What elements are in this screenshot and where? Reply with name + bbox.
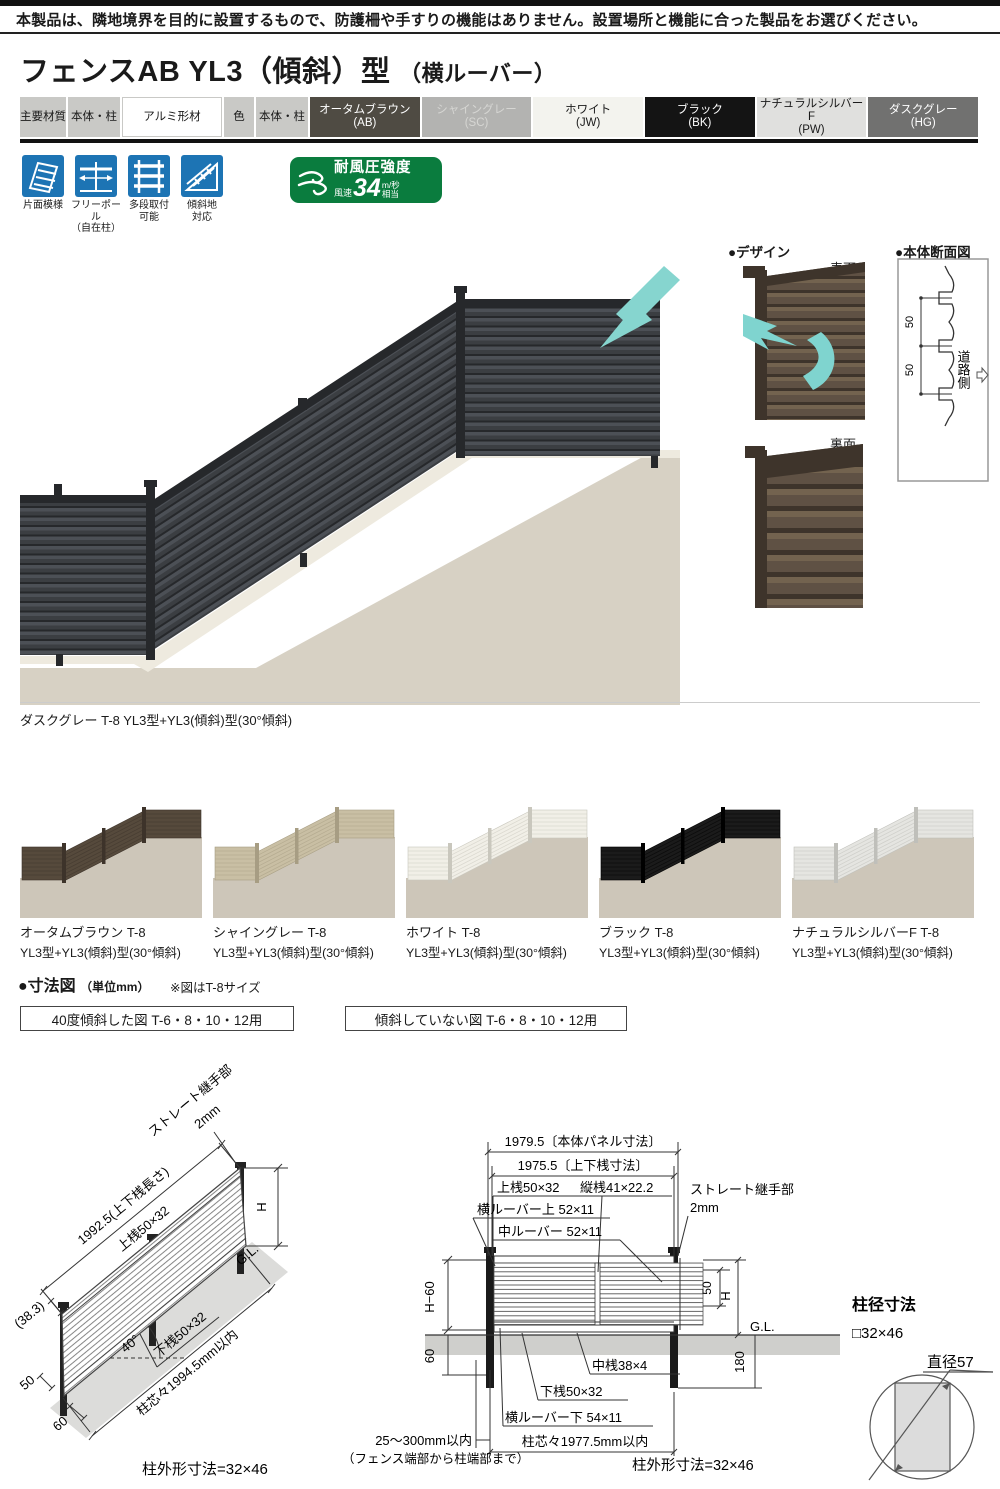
label-180: 180 — [732, 1351, 747, 1373]
variant-image — [792, 798, 974, 918]
color-cell: シャイングレー (SC) — [422, 97, 532, 137]
variant-card: ホワイト T-8 YL3型+YL3(傾斜)型(30°傾斜) — [406, 798, 590, 961]
design-back-image — [745, 440, 863, 608]
spec-color-scope: 本体・柱 — [256, 97, 308, 137]
label-60: 60 — [422, 1349, 437, 1363]
pole-diameter: 直径57 — [927, 1354, 974, 1371]
single-side-pattern-icon — [22, 155, 64, 197]
variant-fence-illustration — [599, 798, 781, 918]
variant-name: ブラック T-8 — [599, 922, 783, 941]
title-main: フェンスAB YL3（傾斜）型 — [20, 56, 391, 88]
color-name: ホワイト — [565, 104, 611, 117]
curb — [20, 656, 154, 664]
feature-slope: 傾斜地対応 — [177, 155, 227, 223]
variant-name: オータムブラウン T-8 — [20, 922, 204, 941]
feature-label: 傾斜地 — [177, 200, 227, 212]
post-cap — [745, 446, 765, 458]
color-name: シャイングレー — [436, 104, 517, 117]
feature-label: 片面模様 — [18, 200, 68, 212]
variant-image — [20, 798, 202, 918]
variant-desc: YL3型+YL3(傾斜)型(30°傾斜) — [406, 943, 590, 961]
pole-size: □32×46 — [852, 1325, 903, 1342]
dims-title: ●寸法図 — [18, 978, 76, 995]
spec-material-header: 主要材質 — [20, 97, 66, 137]
variant-desc: YL3型+YL3(傾斜)型(30°傾斜) — [599, 943, 783, 961]
spec-material-scope: 本体・柱 — [68, 97, 120, 137]
feature-label: 多段取付 — [124, 200, 174, 212]
pole-drawing — [869, 1370, 993, 1480]
label-joint-2mm: 2mm — [191, 1102, 223, 1132]
label-h60: H−60 — [422, 1281, 437, 1312]
variant-card: オータムブラウン T-8 YL3型+YL3(傾斜)型(30°傾斜) — [20, 798, 204, 961]
feature-single-side: 片面模様 — [18, 155, 68, 212]
variant-fence-illustration — [406, 798, 588, 918]
variant-image — [599, 798, 781, 918]
label-h: H — [718, 1291, 733, 1300]
wind-text: 耐風圧強度 風速 34 m/秒相当 — [334, 160, 412, 201]
label-louver-bottom: 横ルーバー下 54×11 — [505, 1410, 622, 1425]
dims-note: ※図はT-8サイズ — [170, 977, 261, 996]
label-joint: ストレート継手部 — [690, 1182, 794, 1197]
color-cell: ブラック (BK) — [645, 97, 755, 137]
section-diagram: 50 50 道路側 — [897, 258, 989, 482]
color-code: (HG) — [911, 117, 936, 130]
variant-card: ナチュラルシルバーF T-8 YL3型+YL3(傾斜)型(30°傾斜) — [792, 798, 976, 961]
wind-prefix: 風速 — [334, 189, 352, 198]
flat-dimension-drawing: 1979.5〔本体パネル寸法〕 1975.5〔上下桟寸法〕 上桟50×32 縦桟… — [340, 1130, 840, 1489]
color-code: (BK) — [688, 117, 711, 130]
label-post-outer: 柱外形寸法=32×46 — [632, 1457, 754, 1474]
spec-material-value: アルミ形材 — [122, 97, 222, 137]
variant-desc: YL3型+YL3(傾斜)型(30°傾斜) — [213, 943, 397, 961]
label-bottom-rail: 下桟50×32 — [540, 1384, 603, 1399]
color-cell: オータムブラウン (AB) — [310, 97, 420, 137]
wind-suffix: 相当 — [382, 190, 400, 199]
feature-multi-stage: 多段取付可能 — [124, 155, 174, 223]
variant-name: シャイングレー T-8 — [213, 922, 397, 941]
label-joint-2mm: 2mm — [690, 1200, 719, 1215]
label-end-distance: 25～300mm以内 — [375, 1433, 472, 1448]
label-offset: (38.3) — [11, 1298, 47, 1331]
variant-fence-illustration — [213, 798, 395, 918]
wind-value: 34 — [353, 176, 381, 201]
label-vertical-rail: 縦桟41×22.2 — [580, 1180, 653, 1195]
page-title: フェンスAB YL3（傾斜）型 （横ルーバー） — [20, 48, 556, 90]
multi-stage-icon — [128, 155, 170, 197]
fence-post — [755, 450, 767, 608]
label-rail-width: 1975.5〔上下桟寸法〕 — [518, 1158, 649, 1173]
label-post-pitch: 柱芯々1977.5mm以内 — [522, 1434, 648, 1449]
top-black-strip — [0, 0, 1000, 6]
post-cap — [743, 266, 765, 278]
color-code: (PW) — [798, 124, 824, 137]
fence-panel-lower — [20, 484, 152, 666]
label-gl: G.L. — [750, 1319, 775, 1334]
dim-50: 50 — [904, 364, 916, 376]
dims-header: ●寸法図 （単位mm） — [18, 972, 149, 996]
variant-name: ホワイト T-8 — [406, 922, 590, 941]
color-cell: ダスクグレー (HG) — [868, 97, 978, 137]
dims-unit: （単位mm） — [80, 980, 149, 994]
color-code: (SC) — [465, 117, 489, 130]
slope-support-icon — [181, 155, 223, 197]
wind-icon — [296, 163, 330, 197]
label-top-rail: 上桟50×32 — [497, 1180, 560, 1195]
variant-card: シャイングレー T-8 YL3型+YL3(傾斜)型(30°傾斜) — [213, 798, 397, 961]
variant-name: ナチュラルシルバーF T-8 — [792, 922, 976, 941]
color-cell: ナチュラルシルバーF (PW) — [757, 97, 867, 137]
divider — [0, 32, 1000, 34]
divider — [20, 702, 980, 703]
divider — [20, 139, 978, 143]
label-50: 50 — [17, 1372, 38, 1393]
variant-desc: YL3型+YL3(傾斜)型(30°傾斜) — [20, 943, 204, 961]
dims-box-sloped: 40度傾斜した図 T-6・8・10・12用 — [20, 1006, 294, 1031]
title-sub: （横ルーバー） — [399, 61, 556, 86]
color-code: (JW) — [576, 117, 600, 130]
label-50: 50 — [700, 1281, 714, 1295]
label-post-outer: 柱外形寸法=32×46 — [142, 1461, 268, 1478]
label-louver-mid: 中ルーバー 52×11 — [498, 1224, 602, 1239]
spec-color-header: 色 — [224, 97, 254, 137]
label-mid-rail: 中桟38×4 — [592, 1358, 647, 1373]
color-name: ダスクグレー — [889, 104, 958, 117]
color-code: (AB) — [353, 117, 376, 130]
page: 本製品は、隣地境界を目的に設置するもので、防護柵や手すりの機能はありません。設置… — [0, 0, 1000, 1489]
variant-card: ブラック T-8 YL3型+YL3(傾斜)型(30°傾斜) — [599, 798, 783, 961]
label-end-distance-note: （フェンス端部から柱端部まで） — [342, 1451, 529, 1466]
main-product-photo — [20, 240, 680, 705]
feature-label: （自在柱） — [71, 223, 121, 235]
feature-label: 可能 — [124, 212, 174, 224]
label-joint: ストレート継手部 — [145, 1062, 235, 1140]
pole-title: 柱径寸法 — [852, 1295, 916, 1314]
design-header: ●デザイン — [728, 241, 790, 261]
dim-50: 50 — [904, 316, 916, 328]
dims-box-flat: 傾斜していない図 T-6・8・10・12用 — [345, 1006, 627, 1031]
color-name: ブラック — [677, 104, 723, 117]
road-side-label: 道路側 — [956, 350, 971, 389]
label-h: H — [254, 1202, 269, 1211]
variant-desc: YL3型+YL3(傾斜)型(30°傾斜) — [792, 943, 976, 961]
variant-fence-illustration — [792, 798, 974, 918]
design-front-image — [743, 262, 865, 420]
feature-label: フリーポール — [71, 200, 121, 223]
pole-diameter-diagram: 柱径寸法 □32×46 直径57 — [845, 1288, 995, 1488]
color-name: オータムブラウン — [319, 104, 410, 117]
free-pole-icon — [75, 155, 117, 197]
wind-resistance-badge: 耐風圧強度 風速 34 m/秒相当 — [290, 157, 442, 203]
spec-table: 主要材質 本体・柱 アルミ形材 色 本体・柱 オータムブラウン (AB) シャイ… — [20, 97, 978, 137]
sloped-dimension-drawing: ストレート継手部 2mm 1992.5(上下桟長さ) 上桟50×32 (38.3… — [0, 1046, 340, 1489]
color-name: ナチュラルシルバーF — [757, 98, 867, 124]
variant-image — [213, 798, 395, 918]
variant-image — [406, 798, 588, 918]
feature-label: 対応 — [177, 212, 227, 224]
label-panel-width: 1979.5〔本体パネル寸法〕 — [505, 1134, 662, 1149]
main-photo-caption: ダスクグレー T-8 YL3型+YL3(傾斜)型(30°傾斜) — [20, 710, 292, 729]
variant-fence-illustration — [20, 798, 202, 918]
notice-text: 本製品は、隣地境界を目的に設置するもので、防護柵や手すりの機能はありません。設置… — [16, 9, 991, 30]
color-cell: ホワイト (JW) — [533, 97, 643, 137]
label-louver-top: 横ルーバー上 52×11 — [477, 1202, 594, 1217]
feature-free-pole: フリーポール（自在柱） — [71, 155, 121, 235]
